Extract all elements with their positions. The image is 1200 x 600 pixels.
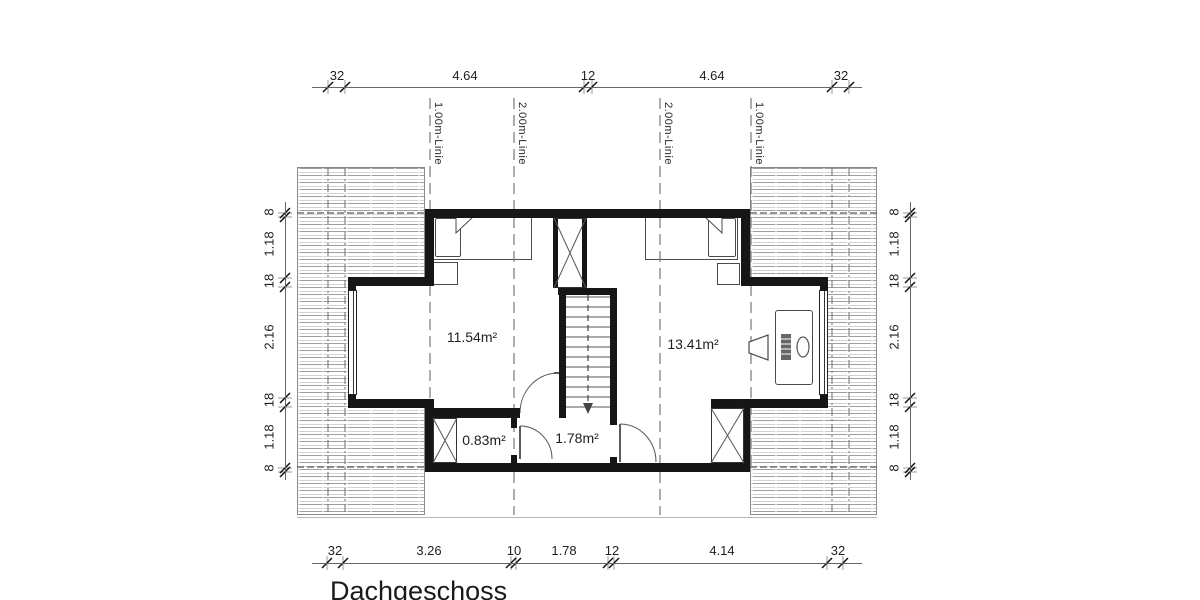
room-label-closet: 0.83m²: [462, 432, 506, 448]
dormer-left-jamb-bottom: [348, 393, 356, 408]
guide-line-label-1m-right: 1.00m-Linie: [753, 101, 765, 166]
stair-wall-left: [559, 288, 566, 418]
wall-bottom: [425, 463, 750, 472]
dormer-left-wall-bottom: [348, 399, 434, 408]
pillow-left: [435, 218, 461, 257]
room-label-hallway: 1.78m²: [555, 430, 599, 446]
wall-top: [425, 209, 750, 218]
dim-right-4: 18: [887, 393, 902, 407]
guide-line-label-1m-left: 1.00m-Linie: [432, 101, 444, 166]
dim-bottom-5: 4.14: [709, 543, 734, 558]
dim-bottom-1: 3.26: [416, 543, 441, 558]
dim-left-1: 1.18: [262, 231, 277, 256]
guide-line-label-2m-right: 2.00m-Linie: [662, 101, 674, 166]
nightstand-left: [433, 262, 458, 285]
dim-top-2: 12: [581, 68, 595, 83]
stair-wall-right: [610, 288, 617, 425]
shaft-top: [553, 218, 587, 288]
dimension-line-top: [312, 87, 862, 88]
wall-right-upper: [741, 209, 750, 277]
dim-left-4: 18: [262, 393, 277, 407]
dim-left-6: 8: [262, 464, 277, 471]
dim-left-0: 8: [262, 208, 277, 215]
dim-right-2: 18: [887, 274, 902, 288]
wall-bedroom-left-south: [425, 408, 520, 418]
stair-arrow-icon: [583, 403, 593, 414]
hall-door-jamb-lower: [610, 457, 617, 467]
dim-left-3: 2.16: [262, 324, 277, 349]
dormer-right-wall-top: [741, 277, 828, 286]
pillow-right: [708, 218, 736, 257]
dim-right-5: 1.18: [887, 424, 902, 449]
drawing-title: Dachgeschoss: [330, 576, 507, 600]
dim-top-1: 4.64: [452, 68, 477, 83]
closet-wall-jamb-bottom: [511, 455, 517, 465]
dim-bottom-4: 12: [605, 543, 619, 558]
dim-top-4: 32: [834, 68, 848, 83]
room-label-bedroom-left: 11.54m²: [447, 329, 497, 345]
window-left: [348, 290, 357, 395]
dim-right-1: 1.18: [887, 231, 902, 256]
dim-bottom-6: 32: [831, 543, 845, 558]
dimension-line-left: [285, 202, 286, 480]
wall-left-upper: [425, 209, 434, 277]
room-label-bedroom-right: 13.41m²: [667, 336, 718, 352]
linework-under: [0, 0, 1200, 600]
nightstand-right: [717, 263, 740, 285]
linework-over: [0, 0, 1200, 600]
closet-wall-jamb-top: [511, 418, 517, 428]
dim-bottom-3: 1.78: [551, 543, 576, 558]
window-right: [819, 290, 828, 395]
eaves-line: [297, 517, 877, 518]
dim-right-6: 8: [887, 464, 902, 471]
dim-right-3: 2.16: [887, 324, 902, 349]
dim-bottom-2: 10: [507, 543, 521, 558]
dormer-left: [348, 277, 425, 408]
dim-left-2: 18: [262, 274, 277, 288]
shaft-bottom-right: [711, 408, 744, 463]
desk: [775, 310, 813, 385]
dormer-right-jamb-bottom: [820, 393, 828, 408]
dim-left-5: 1.18: [262, 424, 277, 449]
dim-top-3: 4.64: [699, 68, 724, 83]
dim-top-0: 32: [330, 68, 344, 83]
guide-line-label-2m-left: 2.00m-Linie: [516, 101, 528, 166]
dim-right-0: 8: [887, 208, 902, 215]
dim-bottom-0: 32: [328, 543, 342, 558]
dormer-right-wall-bottom: [711, 399, 828, 408]
dimension-line-right: [910, 202, 911, 480]
dimension-line-bottom: [312, 563, 862, 564]
stair-wall-top: [558, 288, 617, 295]
shaft-bottom-left: [433, 418, 457, 463]
dormer-left-wall-top: [348, 277, 434, 286]
floor-plan-canvas: 32 4.64 12 4.64 32 32 3.26 10 1.78 12 4.…: [0, 0, 1200, 600]
